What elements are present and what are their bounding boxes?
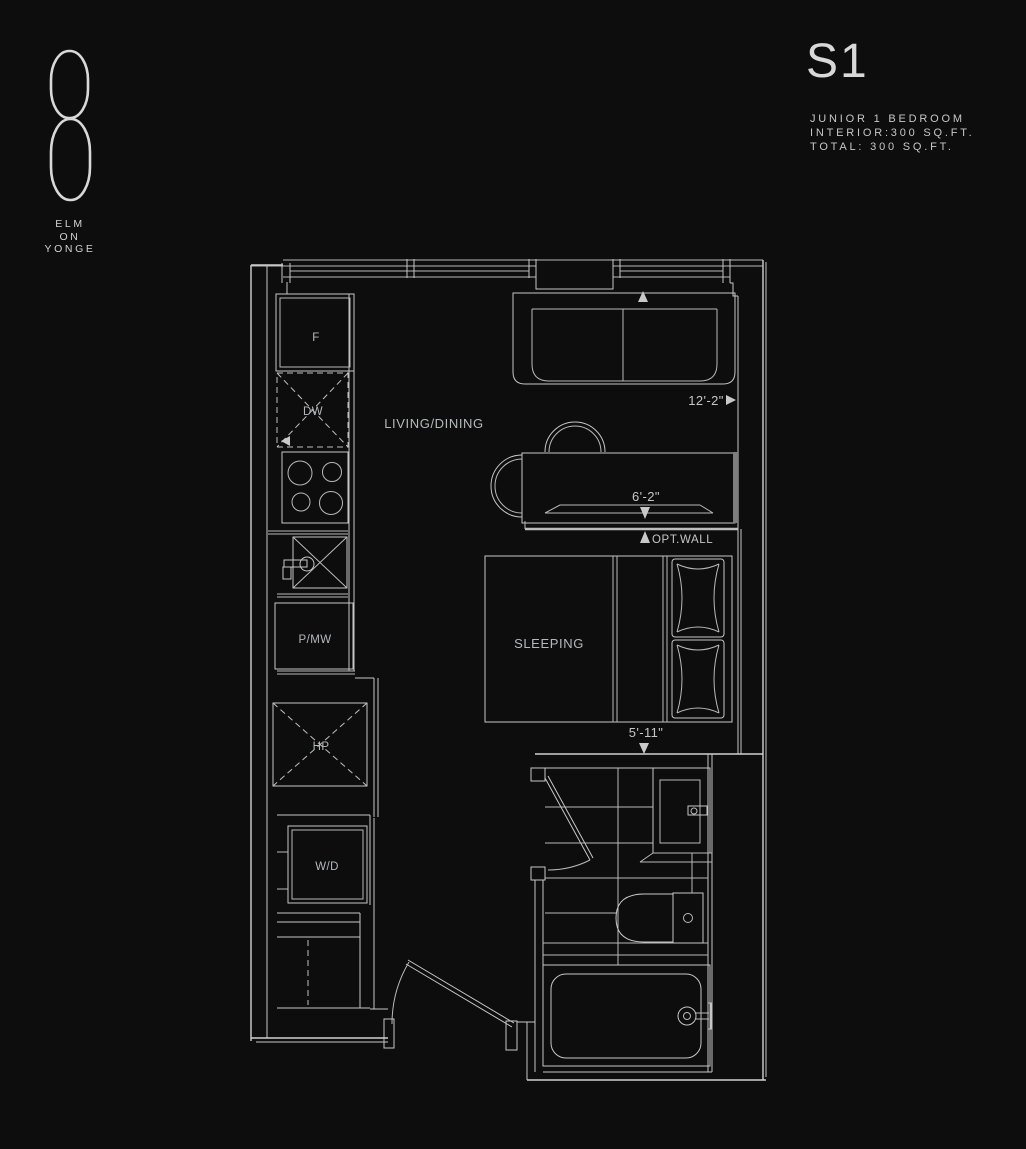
label-fridge: F bbox=[312, 332, 319, 344]
label-living-dining: LIVING/DINING bbox=[384, 416, 484, 431]
bench bbox=[545, 505, 713, 513]
label-heat-pump: HP bbox=[313, 741, 330, 753]
dimension-arrow-right bbox=[726, 395, 736, 405]
bed-fold bbox=[613, 556, 667, 722]
entry-door-leaf bbox=[406, 960, 514, 1027]
sleeping-area bbox=[485, 556, 732, 754]
door-jamb bbox=[531, 867, 545, 880]
floorplan-page: S1 JUNIOR 1 BEDROOM INTERIOR:300 SQ.FT. … bbox=[0, 0, 1026, 1149]
dim-bed-width: 5'-11" bbox=[629, 725, 664, 740]
exterior-walls bbox=[251, 260, 766, 1080]
bathtub bbox=[543, 965, 711, 1066]
chair bbox=[491, 455, 522, 517]
stove bbox=[282, 452, 348, 523]
entry-door bbox=[384, 960, 517, 1050]
label-pantry-microwave: P/MW bbox=[299, 634, 332, 646]
pillow bbox=[672, 559, 724, 637]
brand-logo-icon bbox=[51, 51, 90, 200]
floor-plan-drawing: F DW LIVING/DINING 12'-2" 6'-2" OPT.WALL… bbox=[0, 0, 1026, 1149]
dishwasher-door-arrow bbox=[281, 436, 290, 446]
label-washer-dryer: W/D bbox=[315, 861, 339, 873]
dining-table bbox=[522, 452, 738, 523]
dim-table-width: 6'-2" bbox=[632, 489, 660, 504]
wall-recess bbox=[536, 277, 613, 289]
pillow bbox=[672, 640, 724, 718]
floor-tiles bbox=[543, 768, 708, 965]
kitchen bbox=[268, 294, 355, 674]
entry-door-swing-arc bbox=[392, 962, 409, 1024]
label-sleeping: SLEEPING bbox=[514, 636, 584, 651]
window-band bbox=[251, 259, 763, 294]
kitchen-sink bbox=[283, 537, 347, 588]
optional-wall-segment bbox=[733, 452, 738, 523]
living-dining bbox=[491, 291, 738, 543]
bathroom-door-leaf bbox=[545, 776, 593, 860]
chair bbox=[545, 422, 605, 452]
bathroom bbox=[531, 754, 763, 1072]
door-jamb bbox=[531, 768, 545, 781]
dimension-arrow-down bbox=[639, 743, 649, 754]
label-opt-wall: OPT.WALL bbox=[652, 534, 713, 546]
sofa bbox=[513, 293, 735, 384]
door-jamb bbox=[506, 1021, 517, 1050]
label-dishwasher: DW bbox=[303, 406, 323, 418]
vanity-sink bbox=[640, 768, 712, 862]
toilet bbox=[616, 893, 703, 943]
bathroom-door-swing-arc bbox=[548, 860, 590, 870]
opt-wall-arrow-up bbox=[640, 531, 650, 543]
laundry-closet bbox=[277, 815, 388, 1009]
dim-living-width: 12'-2" bbox=[688, 393, 724, 408]
